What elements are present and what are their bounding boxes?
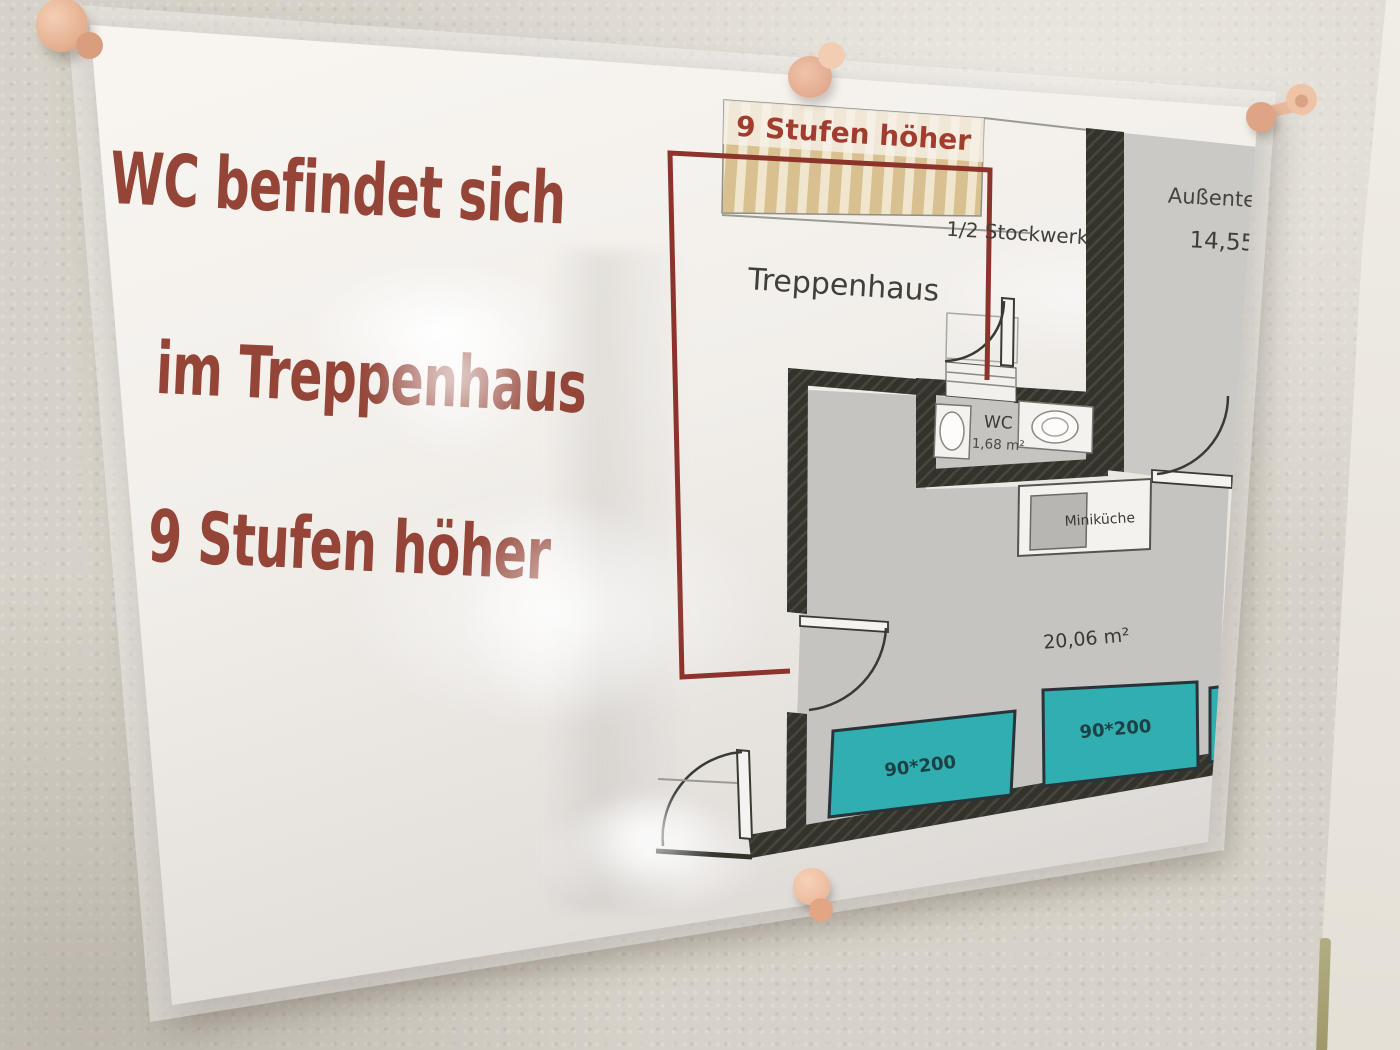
terrace-label: Außenter <box>1167 183 1265 212</box>
pushpin-icon-bottom-middle <box>793 868 853 932</box>
sign-text-line-1: WC befindet sich <box>108 136 567 241</box>
pushpin-icon-top-right <box>1246 82 1326 142</box>
floor-plan: 9 Stufen höher Treppenhaus 1/2 Stockwerk… <box>630 60 1290 890</box>
photo-wall-sign: WC befindet sich im Treppenhaus 9 Stufen… <box>0 0 1400 1050</box>
laminated-notice-sheet: WC befindet sich im Treppenhaus 9 Stufen… <box>0 0 1400 1050</box>
pinned-sheet-group: WC befindet sich im Treppenhaus 9 Stufen… <box>0 0 1400 1050</box>
wc-label: WC <box>983 412 1013 433</box>
pushpin-icon-top-left <box>36 0 146 74</box>
pushpin-icon-top-middle <box>788 42 858 102</box>
staircase-label: Treppenhaus <box>746 262 940 309</box>
half-floor-label: 1/2 Stockwerk <box>946 217 1090 250</box>
door-arc-entry <box>663 752 742 846</box>
door-arc-wc <box>945 301 1004 361</box>
wc-area-label: 1,68 m² <box>971 436 1025 455</box>
sign-text-line-3: 9 Stufen höher <box>146 494 552 596</box>
sign-text-line-2: im Treppenhaus <box>154 326 588 429</box>
terrace-area-label: 14,55 <box>1189 227 1256 256</box>
landing-line-top <box>984 118 1088 130</box>
door-leaf-entry <box>737 750 752 839</box>
